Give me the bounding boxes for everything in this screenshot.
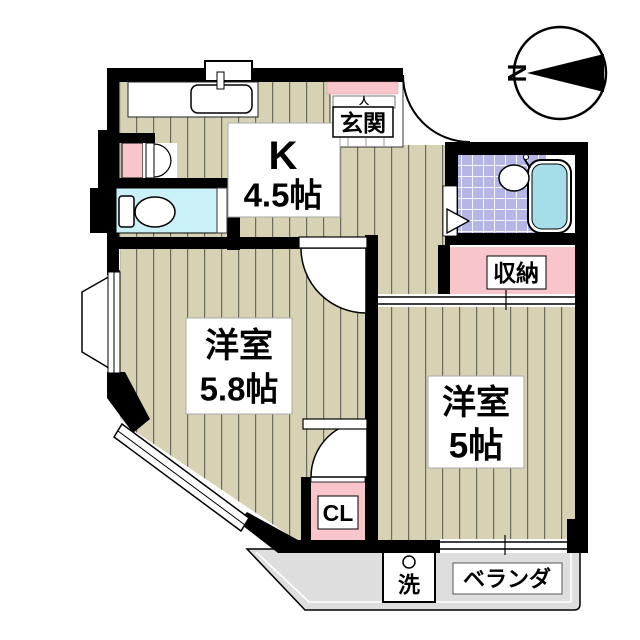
kitchen-label: K bbox=[269, 134, 298, 178]
wall-bath-bottom bbox=[445, 233, 588, 245]
wall-right bbox=[575, 142, 588, 527]
floor-plan-svg: K 4.5帖 人 玄関 洋室 5.8帖 洋室 5帖 収納 CL 洗 ベランダ N bbox=[0, 0, 640, 640]
compass-north-label: N bbox=[502, 64, 532, 83]
veranda-label: ベランダ bbox=[463, 567, 551, 592]
wall-storage-left bbox=[438, 245, 450, 297]
wall-left-upper bbox=[107, 68, 119, 138]
entrance-mark: 人 bbox=[359, 95, 370, 108]
shoe-cabinet bbox=[327, 82, 398, 94]
floor-plan-page: K 4.5帖 人 玄関 洋室 5.8帖 洋室 5帖 収納 CL 洗 ベランダ N bbox=[0, 0, 640, 640]
wall-left-toilet bbox=[90, 188, 119, 233]
washer-faucet-icon bbox=[403, 556, 415, 568]
wall-closet-left bbox=[301, 477, 311, 540]
room-58-size: 5.8帖 bbox=[200, 371, 279, 408]
room-58-label: 洋室 bbox=[205, 326, 273, 365]
room-58-door-leaf bbox=[299, 237, 367, 248]
toilet-icon bbox=[135, 197, 175, 227]
toilet-door bbox=[217, 188, 227, 233]
room-5-label: 洋室 bbox=[442, 383, 510, 422]
entrance-label: 玄関 bbox=[340, 110, 386, 136]
wall-bath-top bbox=[445, 142, 588, 155]
bathtub-water bbox=[532, 164, 567, 229]
wall-central bbox=[365, 235, 378, 540]
wall-top bbox=[107, 68, 403, 82]
room-5-size: 5帖 bbox=[449, 427, 503, 466]
compartment-pink bbox=[122, 143, 143, 178]
kitchen-size: 4.5帖 bbox=[244, 177, 323, 214]
wall-bottom-right-corner bbox=[567, 519, 588, 553]
toilet-tank-icon bbox=[119, 196, 134, 227]
toilet-room bbox=[116, 188, 227, 233]
wall-kitchen-room bbox=[107, 237, 300, 249]
storage-compartment bbox=[122, 143, 177, 178]
closet-door-leaf bbox=[303, 419, 367, 429]
closet-label: CL bbox=[323, 500, 354, 526]
wall-compartment-top bbox=[118, 133, 155, 143]
kitchen-window bbox=[205, 61, 252, 81]
faucet-icon bbox=[217, 72, 224, 89]
washbasin-icon bbox=[499, 165, 529, 191]
wall-toilet-top bbox=[118, 178, 230, 188]
washer-label: 洗 bbox=[398, 573, 420, 598]
bathroom bbox=[443, 155, 575, 237]
double-door-leaves bbox=[146, 143, 154, 178]
storage-label: 収納 bbox=[493, 260, 539, 286]
wall-left-mid bbox=[98, 130, 119, 192]
